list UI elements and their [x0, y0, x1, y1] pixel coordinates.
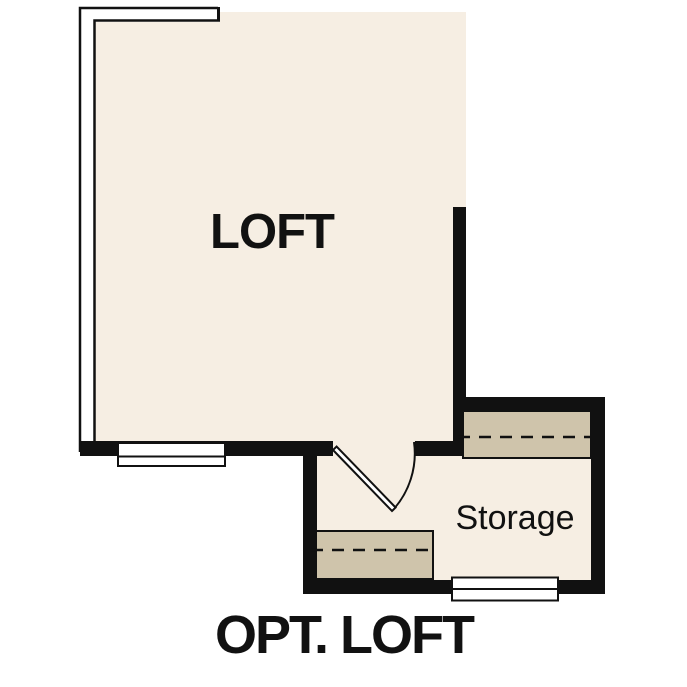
storage-shelf-top-right [463, 411, 591, 458]
storage-right-wall [591, 397, 605, 594]
storage-top-wall [453, 397, 605, 411]
room-floors [95, 12, 592, 580]
loft-room-label: LOFT [210, 205, 335, 259]
storage-shelf-bottom-left [316, 531, 433, 579]
storage-left-wall [303, 441, 317, 594]
floor-plan-page: LOFT Storage OPT. LOFT [0, 0, 687, 687]
loft-window [118, 443, 225, 466]
floor-plan-canvas: LOFT Storage OPT. LOFT [0, 0, 687, 687]
plan-title: OPT. LOFT [215, 605, 475, 665]
storage-room-label: Storage [455, 499, 574, 537]
